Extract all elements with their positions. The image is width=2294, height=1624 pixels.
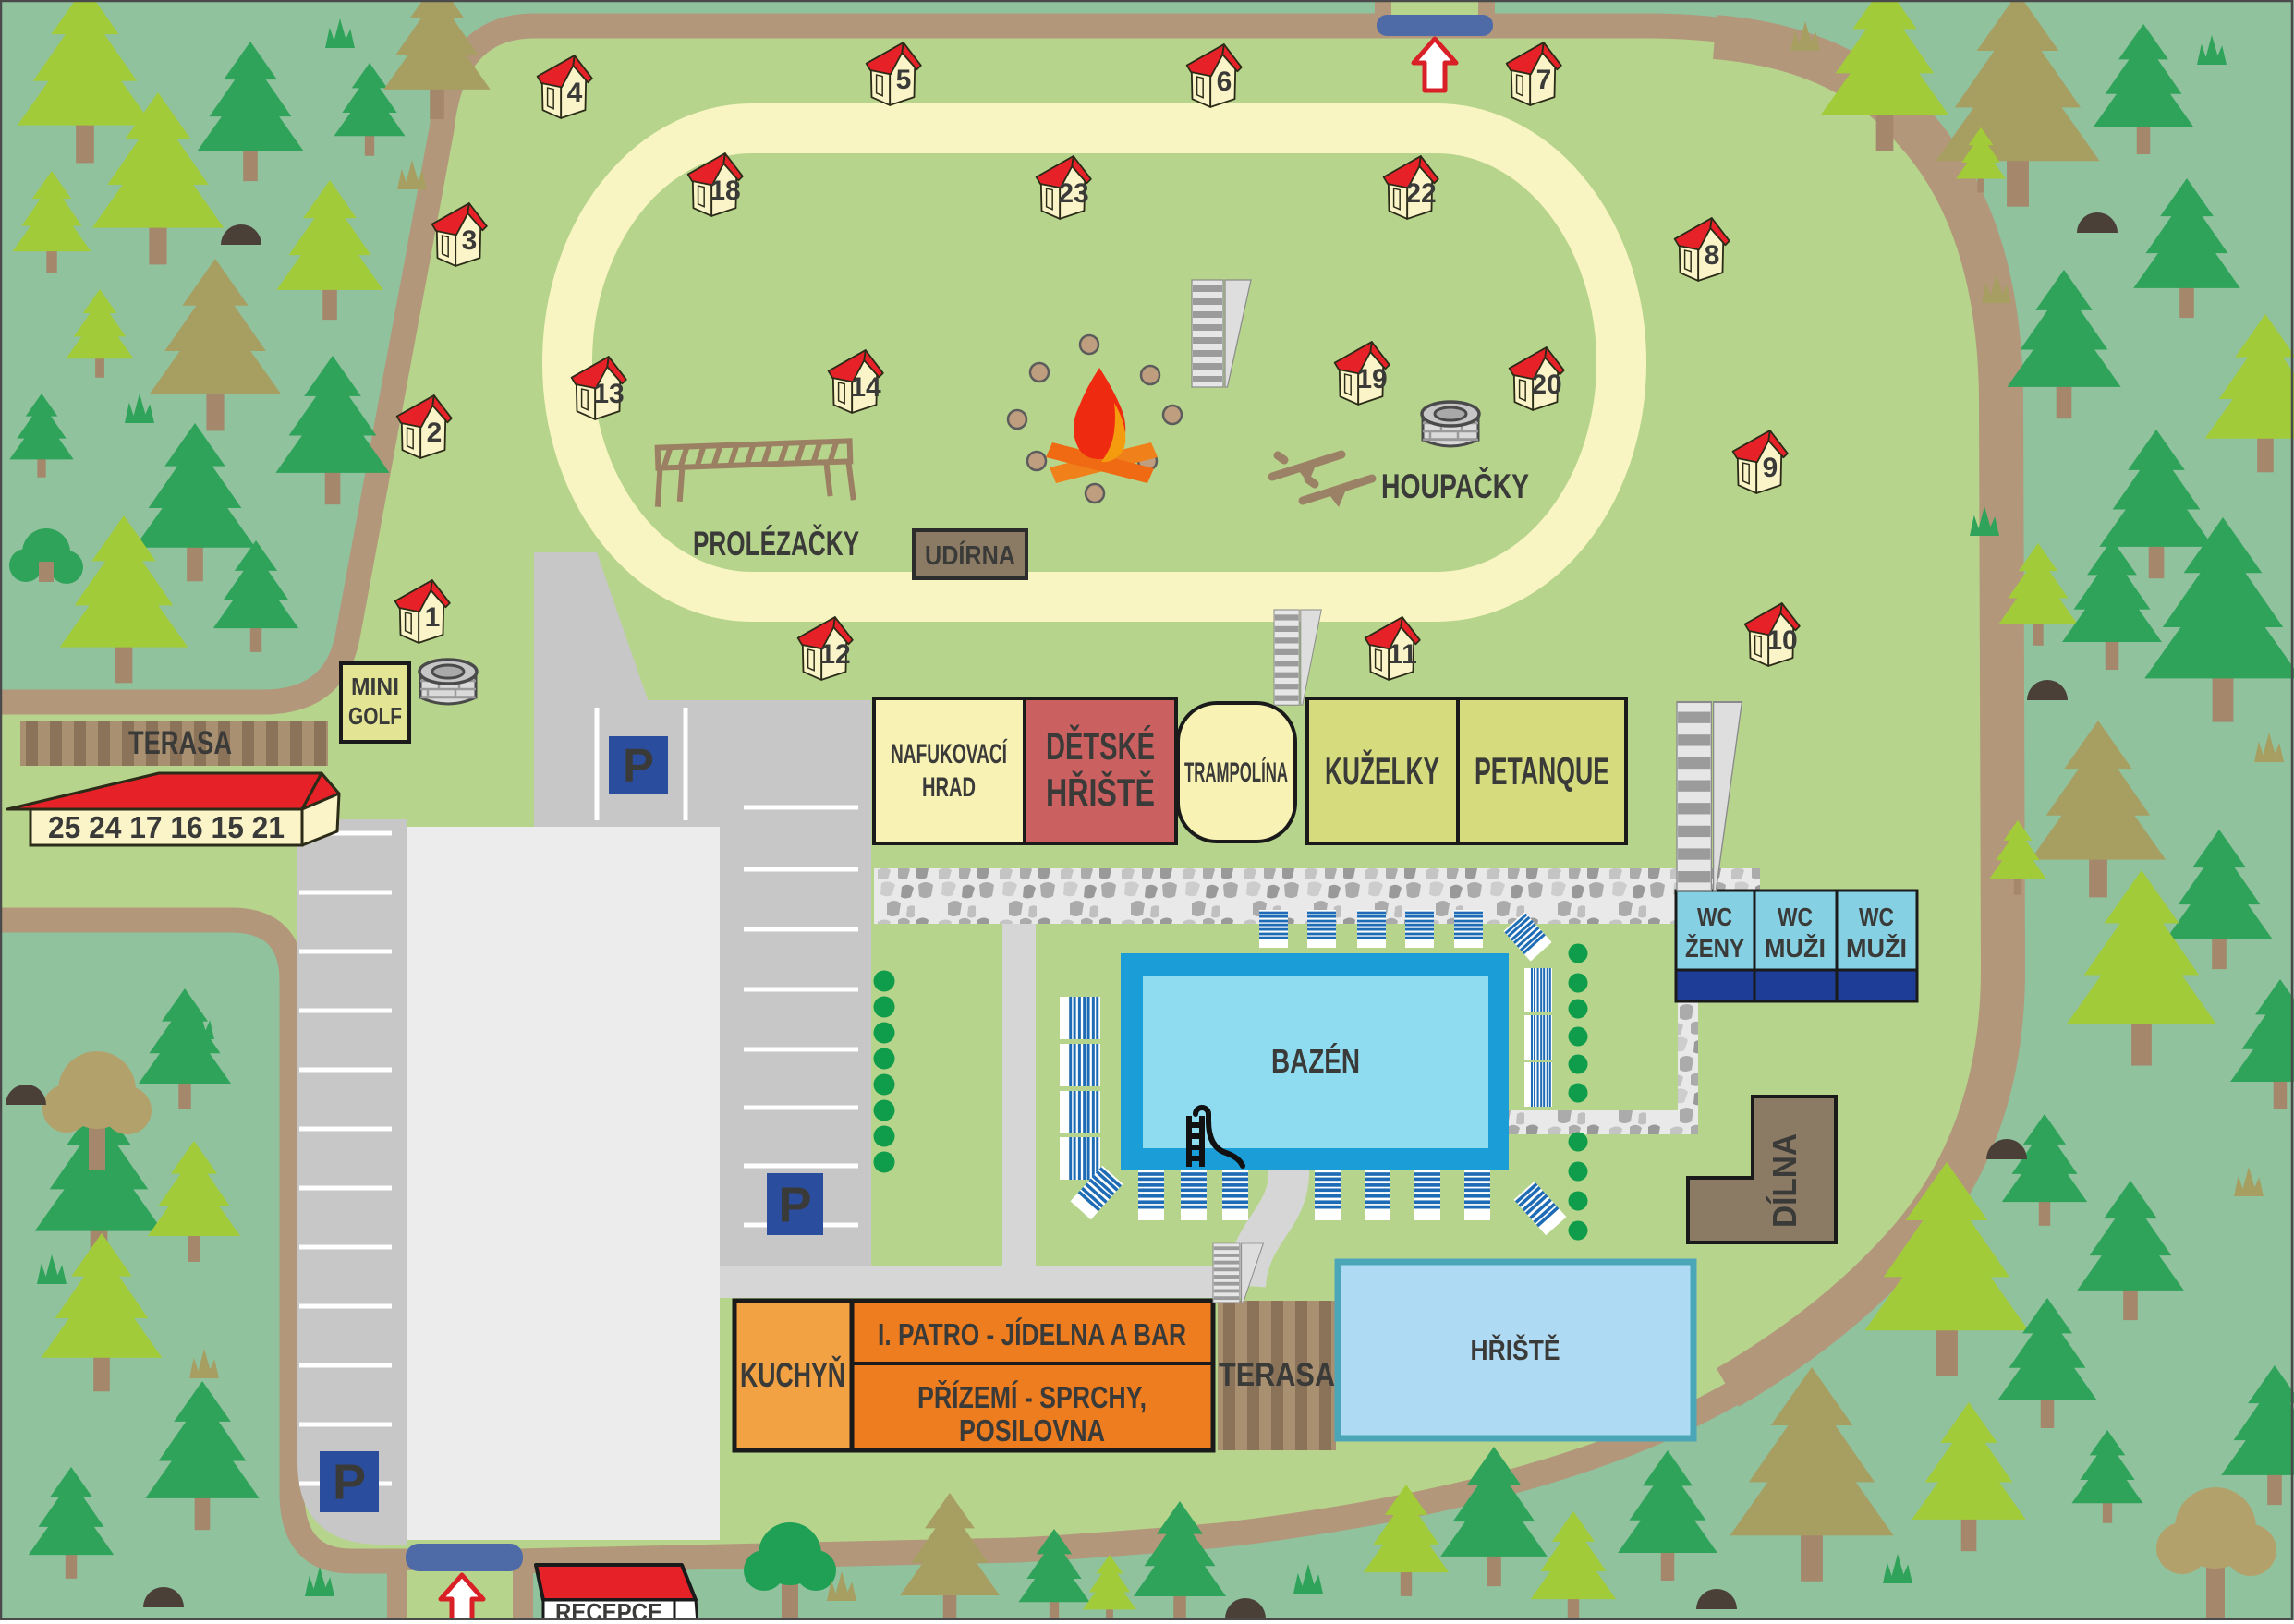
svg-text:19: 19 xyxy=(1356,364,1387,394)
svg-text:I. PATRO - JÍDELNA A BAR: I. PATRO - JÍDELNA A BAR xyxy=(878,1317,1186,1351)
svg-text:6: 6 xyxy=(1217,67,1232,97)
svg-text:UDÍRNA: UDÍRNA xyxy=(925,539,1015,571)
svg-text:DÍLNA: DÍLNA xyxy=(1766,1133,1803,1228)
svg-text:PŘÍZEMÍ - SPRCHY,: PŘÍZEMÍ - SPRCHY, xyxy=(917,1380,1147,1414)
svg-text:WC: WC xyxy=(1778,903,1813,931)
svg-text:GOLF: GOLF xyxy=(348,702,402,730)
svg-text:KUCHYŇ: KUCHYŇ xyxy=(740,1355,845,1394)
svg-text:25 24 17 16 15 21: 25 24 17 16 15 21 xyxy=(48,810,285,844)
svg-text:HŘIŠTĚ: HŘIŠTĚ xyxy=(1046,770,1155,814)
svg-text:23: 23 xyxy=(1058,178,1088,209)
svg-text:3: 3 xyxy=(462,225,478,256)
svg-text:HŘIŠTĚ: HŘIŠTĚ xyxy=(1471,1333,1560,1366)
svg-text:1: 1 xyxy=(425,602,441,633)
svg-text:8: 8 xyxy=(1705,240,1720,271)
svg-text:MUŽI: MUŽI xyxy=(1846,934,1907,963)
svg-text:MUŽI: MUŽI xyxy=(1765,934,1826,963)
svg-text:13: 13 xyxy=(593,379,624,409)
svg-text:4: 4 xyxy=(567,78,583,108)
svg-text:7: 7 xyxy=(1536,65,1552,95)
svg-text:22: 22 xyxy=(1405,178,1436,209)
svg-text:9: 9 xyxy=(1763,453,1778,483)
svg-text:20: 20 xyxy=(1531,370,1561,400)
svg-text:NAFUKOVACÍ: NAFUKOVACÍ xyxy=(891,738,1007,770)
svg-text:ŽENY: ŽENY xyxy=(1685,934,1744,963)
svg-text:TERASA: TERASA xyxy=(128,725,232,761)
svg-text:WC: WC xyxy=(1859,903,1894,931)
svg-text:10: 10 xyxy=(1766,625,1797,656)
svg-text:12: 12 xyxy=(819,639,850,670)
svg-text:BAZÉN: BAZÉN xyxy=(1271,1042,1360,1080)
svg-text:POSILOVNA: POSILOVNA xyxy=(959,1413,1105,1448)
svg-text:TERASA: TERASA xyxy=(1219,1357,1335,1393)
svg-text:TRAMPOLÍNA: TRAMPOLÍNA xyxy=(1184,757,1288,788)
svg-text:P: P xyxy=(623,739,654,792)
svg-text:HOUPAČKY: HOUPAČKY xyxy=(1381,467,1529,505)
svg-text:DĚTSKÉ: DĚTSKÉ xyxy=(1046,723,1155,768)
svg-text:2: 2 xyxy=(427,418,443,448)
svg-text:14: 14 xyxy=(850,372,881,403)
svg-text:5: 5 xyxy=(896,65,912,95)
svg-text:WC: WC xyxy=(1697,903,1732,931)
svg-text:P: P xyxy=(778,1177,811,1232)
svg-text:P: P xyxy=(333,1454,366,1509)
svg-text:PETANQUE: PETANQUE xyxy=(1475,749,1609,793)
svg-text:PROLÉZAČKY: PROLÉZAČKY xyxy=(693,524,859,563)
svg-text:11: 11 xyxy=(1388,639,1417,670)
svg-text:18: 18 xyxy=(710,176,740,206)
svg-text:HRAD: HRAD xyxy=(922,772,976,803)
svg-text:MINI: MINI xyxy=(351,673,399,700)
svg-text:KUŽELKY: KUŽELKY xyxy=(1325,748,1439,793)
